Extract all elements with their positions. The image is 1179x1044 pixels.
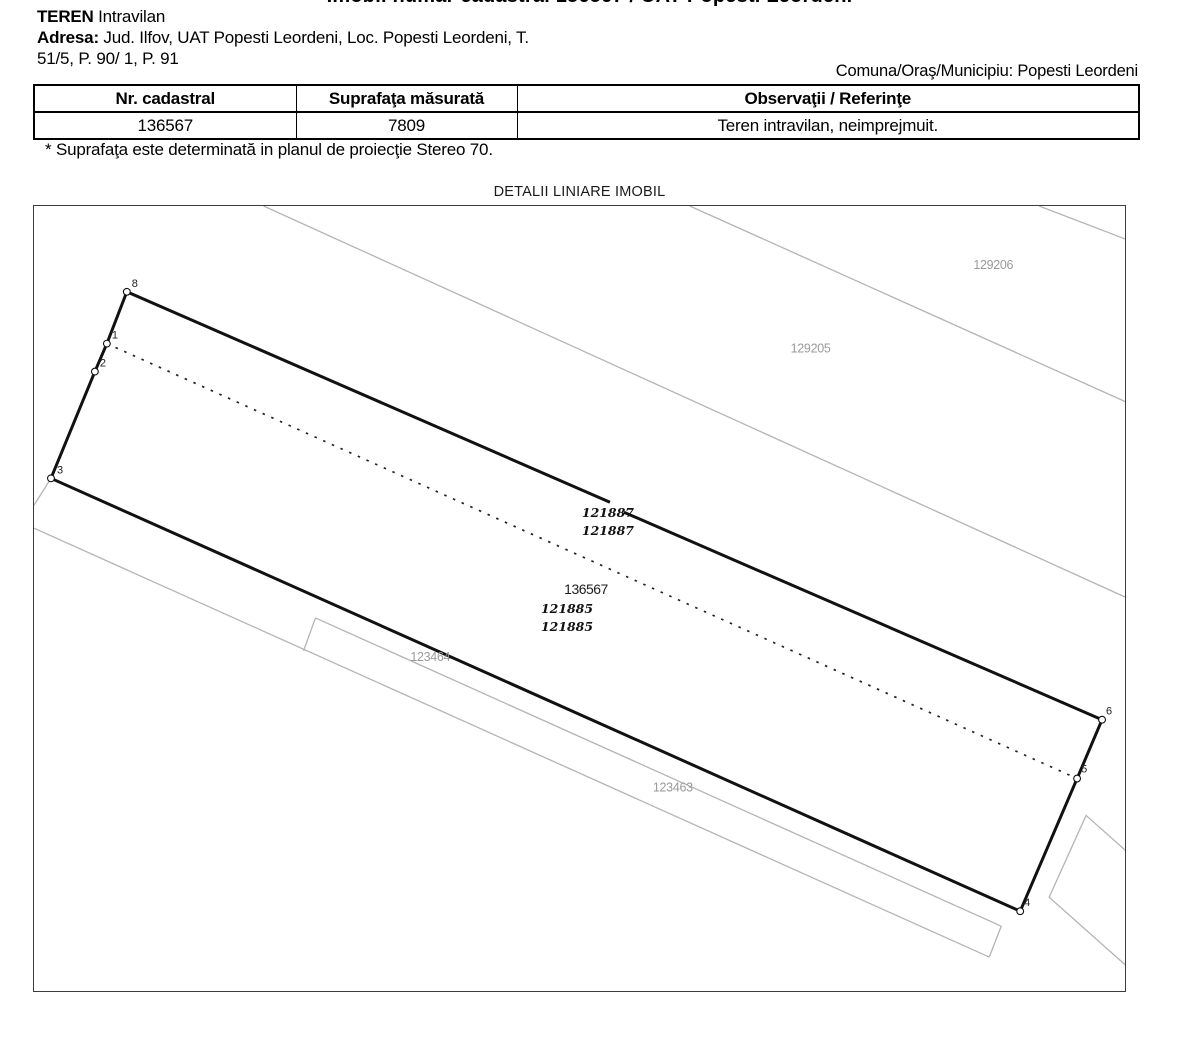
vertex-number: 8 bbox=[132, 278, 138, 290]
vertex-number: 6 bbox=[1106, 706, 1112, 718]
cell-suprafata: 7809 bbox=[296, 112, 517, 139]
vertex-marker bbox=[103, 340, 110, 347]
footnote-stereo70: * Suprafaţa este determinată in planul d… bbox=[45, 140, 493, 160]
vertex-number: 4 bbox=[1024, 897, 1030, 909]
parcel-number-label: 123463 bbox=[653, 781, 693, 795]
teren-line: TEREN Intravilan bbox=[37, 7, 165, 27]
cadastral-document-page: Imobil numar cadastral 136567 / UAT Pope… bbox=[0, 0, 1179, 1044]
neighbor-parcel-outline bbox=[1049, 815, 1125, 977]
adresa-label: Adresa: bbox=[37, 28, 99, 47]
page-title: Imobil numar cadastral 136567 / UAT Pope… bbox=[0, 0, 1179, 8]
adresa-line: Adresa: Jud. Ilfov, UAT Popesti Leordeni… bbox=[37, 28, 529, 48]
vertex-marker bbox=[48, 475, 55, 482]
vertex-marker bbox=[1074, 775, 1081, 782]
vertex-number: 5 bbox=[1081, 764, 1087, 776]
parcel-boundary-edge bbox=[1020, 779, 1077, 912]
vertex-marker bbox=[123, 288, 130, 295]
parcel-boundary-edge bbox=[127, 292, 610, 502]
vertex-marker bbox=[91, 368, 98, 375]
parcel-number-label: 121887 bbox=[582, 523, 634, 538]
parcel-number-label: 121887 bbox=[582, 505, 634, 520]
parcel-dashed-line bbox=[107, 344, 1077, 779]
parcel-number-label: 129205 bbox=[791, 342, 831, 356]
table-header-row: Nr. cadastral Suprafaţa măsurată Observa… bbox=[34, 85, 1139, 112]
table-row: 136567 7809 Teren intravilan, neimprejmu… bbox=[34, 112, 1139, 139]
vertex-number: 1 bbox=[112, 330, 118, 342]
header-suprafata: Suprafaţa măsurată bbox=[296, 85, 517, 112]
vertex-marker bbox=[1017, 908, 1024, 915]
neighbor-parcel-line bbox=[1039, 206, 1125, 239]
vertex-marker bbox=[1099, 716, 1106, 723]
neighbor-parcel-line bbox=[690, 206, 1125, 402]
parcel-number-label: 123464 bbox=[410, 650, 450, 664]
parcel-number-label: 121885 bbox=[541, 601, 593, 616]
cell-observatii: Teren intravilan, neimprejmuit. bbox=[517, 112, 1139, 139]
header-observatii: Observaţii / Referinţe bbox=[517, 85, 1139, 112]
parcel-boundary-edge bbox=[51, 478, 1020, 911]
parcel-number-label: 121885 bbox=[541, 619, 593, 634]
vertex-number: 3 bbox=[57, 464, 63, 476]
comuna-oras-municipiu: Comuna/Oraş/Municipiu: Popesti Leordeni bbox=[836, 62, 1138, 81]
neighbor-parcel-line bbox=[34, 478, 51, 505]
adresa-value: Jud. Ilfov, UAT Popesti Leordeni, Loc. P… bbox=[99, 28, 529, 47]
cell-nr-cadastral: 136567 bbox=[34, 112, 296, 139]
parcel-number-label: 129206 bbox=[973, 258, 1013, 272]
cadastral-map: 8123654129206129205121887121887136567121… bbox=[33, 205, 1126, 992]
neighbor-parcel-line bbox=[989, 926, 1001, 957]
teren-value: Intravilan bbox=[94, 7, 166, 26]
cadastral-map-svg: 8123654129206129205121887121887136567121… bbox=[34, 206, 1125, 991]
map-title: DETALII LINIARE IMOBIL bbox=[33, 184, 1126, 200]
adresa-line2: 51/5, P. 90/ 1, P. 91 bbox=[37, 49, 179, 69]
neighbor-parcel-line bbox=[34, 528, 989, 957]
header-nr-cadastral: Nr. cadastral bbox=[34, 85, 296, 112]
vertex-number: 2 bbox=[100, 358, 106, 370]
parcel-boundary-edge bbox=[624, 512, 1102, 719]
neighbor-parcel-line bbox=[304, 618, 316, 651]
teren-label: TEREN bbox=[37, 7, 94, 26]
parcel-number-label: 136567 bbox=[564, 581, 608, 597]
page-title-clipped: Imobil numar cadastral 136567 / UAT Pope… bbox=[0, 0, 1179, 9]
parcel-boundary-edge bbox=[51, 372, 95, 479]
cadastral-table: Nr. cadastral Suprafaţa măsurată Observa… bbox=[33, 84, 1140, 140]
neighbor-parcel-line bbox=[315, 618, 1001, 926]
